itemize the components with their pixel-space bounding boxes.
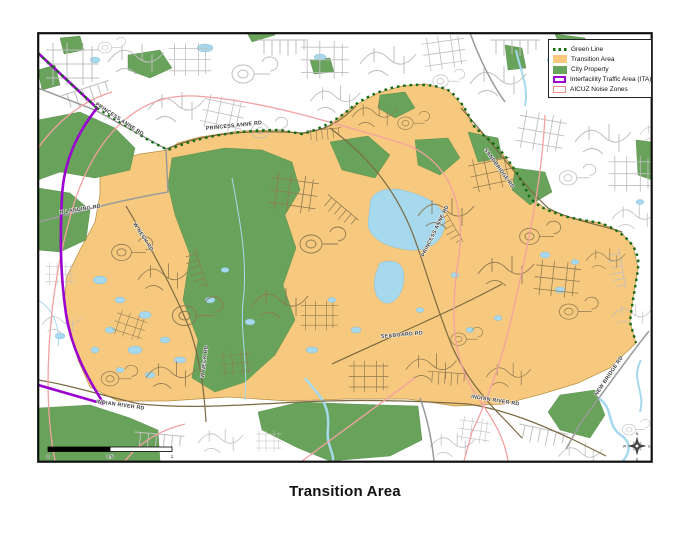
transition-area-swatch-icon	[553, 55, 567, 63]
legend-item-aicuz: AICUZ Noise Zones	[553, 86, 647, 93]
compass-n: N	[636, 432, 639, 436]
aicuz-swatch-icon	[553, 86, 566, 93]
scale-tick-0: 0	[47, 454, 50, 459]
scale-tick-half: 0.5	[107, 454, 114, 459]
scale-tick-1: 1	[171, 454, 174, 459]
legend-label: Transition Area	[571, 56, 614, 63]
map-legend: Green Line Transition Area City Property…	[548, 39, 652, 98]
legend-item-transition-area: Transition Area	[553, 55, 647, 63]
page-title: Transition Area	[0, 483, 690, 500]
map-page: PRINCESS ANNE RD PRINCESS ANNE RD PRINCE…	[0, 0, 690, 533]
city-property-swatch-icon	[553, 66, 567, 74]
ita-swatch-icon	[553, 76, 566, 83]
green-line-swatch-icon	[553, 48, 567, 51]
legend-label: Interfacility Traffic Area (ITA)	[570, 76, 651, 83]
legend-label: Green Line	[571, 46, 603, 53]
legend-item-city-property: City Property	[553, 66, 647, 74]
legend-label: City Property	[571, 66, 609, 73]
legend-item-green-line: Green Line	[553, 46, 647, 53]
legend-item-ita: Interfacility Traffic Area (ITA)	[553, 76, 647, 83]
legend-label: AICUZ Noise Zones	[570, 86, 628, 93]
compass-w: W	[623, 444, 627, 448]
